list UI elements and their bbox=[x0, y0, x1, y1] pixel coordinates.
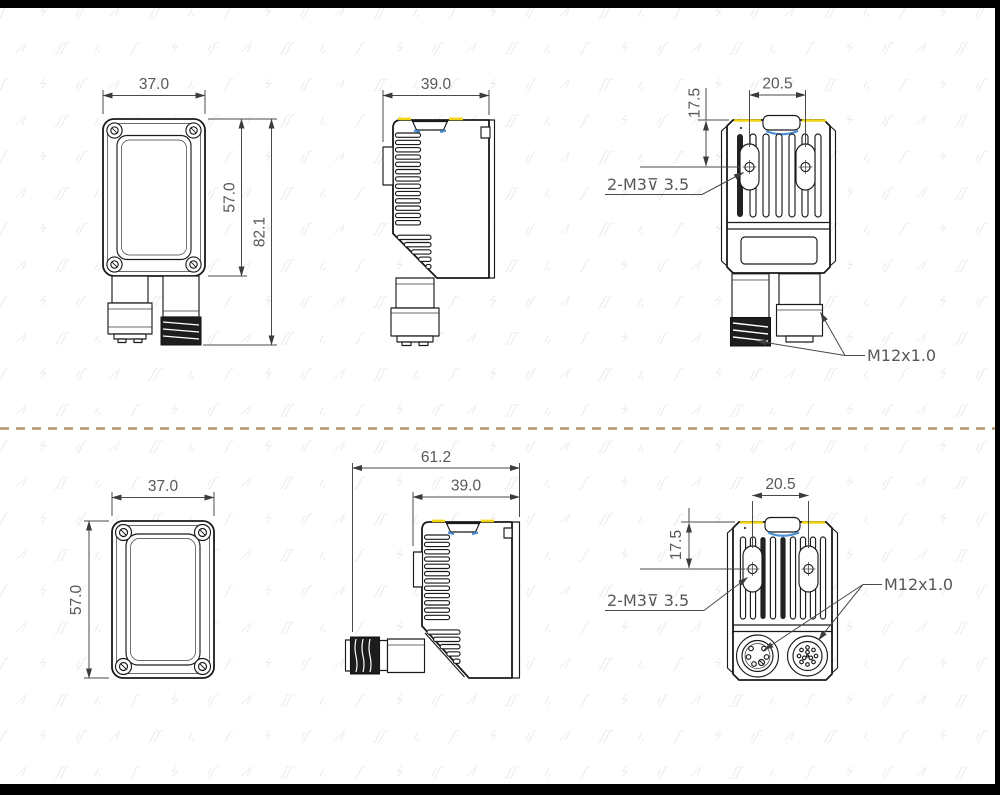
mounting-boss bbox=[740, 144, 759, 190]
svg-text:ı,: ı, bbox=[543, 403, 555, 418]
svg-text:ϟ: ϟ bbox=[711, 367, 724, 382]
svg-text:ıʃ: ıʃ bbox=[74, 657, 88, 672]
svg-text:ϟ: ϟ bbox=[393, 765, 406, 780]
svg-text:ʃ: ʃ bbox=[128, 693, 140, 708]
svg-text:ϟ: ϟ bbox=[618, 41, 631, 56]
svg-text:⁄ı: ⁄ı bbox=[689, 693, 703, 708]
svg-text:ʃ: ʃ bbox=[222, 222, 234, 237]
svg-text:ıʃ: ıʃ bbox=[880, 114, 894, 129]
svg-text:⁄ı: ⁄ı bbox=[557, 584, 571, 599]
svg-text:ı,: ı, bbox=[768, 693, 780, 708]
svg-text:ʃ: ʃ bbox=[0, 729, 9, 744]
svg-text:⁄ı: ⁄ı bbox=[332, 150, 346, 165]
svg-text:ı,: ı, bbox=[636, 729, 648, 744]
technical-drawing-page: ʃϟıʃ⁄ıʃʃı,ʃϟıʃ⁄ıʃʃı,ʃϟıʃ⁄ıʃʃı,ʃϟıʃ⁄ıʃʃı,… bbox=[0, 0, 1000, 795]
svg-text:ʃʃ: ʃʃ bbox=[953, 765, 969, 780]
svg-text:ʃ: ʃ bbox=[0, 584, 9, 599]
svg-text:ʃ: ʃ bbox=[0, 222, 9, 237]
svg-text:ϟ: ϟ bbox=[261, 729, 274, 744]
svg-text:ϟ: ϟ bbox=[261, 150, 274, 165]
svg-text:ı,: ı, bbox=[543, 693, 555, 708]
svg-text:ıʃ: ıʃ bbox=[74, 295, 88, 310]
svg-text:ı,: ı, bbox=[543, 548, 555, 563]
svg-text:ıʃ: ıʃ bbox=[205, 765, 219, 780]
svg-text:ı,: ı, bbox=[636, 150, 648, 165]
svg-text:ʃʃ: ʃʃ bbox=[53, 114, 69, 129]
svg-text:ʃʃ: ʃʃ bbox=[278, 621, 294, 636]
svg-text:ıʃ: ıʃ bbox=[430, 403, 444, 418]
svg-text:ϟ: ϟ bbox=[618, 765, 631, 780]
svg-text:ıʃ: ıʃ bbox=[299, 440, 313, 455]
svg-text:ı,: ı, bbox=[861, 295, 873, 310]
dim-label: 39.0 bbox=[421, 76, 452, 93]
svg-text:ı,: ı, bbox=[636, 367, 648, 382]
svg-text:ʃ: ʃ bbox=[578, 548, 590, 563]
svg-text:ʃ: ʃ bbox=[897, 150, 909, 165]
svg-text:ʃʃ: ʃʃ bbox=[372, 295, 388, 310]
svg-text:ʃʃ: ʃʃ bbox=[597, 729, 613, 744]
dim-label: 82.1 bbox=[252, 217, 269, 247]
svg-text:ʃʃ: ʃʃ bbox=[53, 331, 69, 346]
svg-text:ʃʃ: ʃʃ bbox=[53, 765, 69, 780]
svg-text:ı,: ı, bbox=[318, 331, 330, 346]
svg-text:ʃʃ: ʃʃ bbox=[278, 403, 294, 418]
svg-text:⁄ı: ⁄ı bbox=[782, 367, 796, 382]
svg-text:⁄ı: ⁄ı bbox=[689, 765, 703, 780]
svg-text:ı,: ı, bbox=[318, 765, 330, 780]
svg-text:ʃʃ: ʃʃ bbox=[597, 657, 613, 672]
svg-text:⁄ı: ⁄ı bbox=[782, 440, 796, 455]
svg-text:ϟ: ϟ bbox=[36, 367, 49, 382]
svg-text:ıʃ: ıʃ bbox=[880, 331, 894, 346]
svg-text:ʃ: ʃ bbox=[672, 295, 684, 310]
dim-label: 20.5 bbox=[765, 476, 795, 493]
svg-text:ıʃ: ıʃ bbox=[880, 41, 894, 56]
svg-text:ϟ: ϟ bbox=[36, 729, 49, 744]
svg-text:ϟ: ϟ bbox=[261, 78, 274, 93]
svg-text:ʃ: ʃ bbox=[353, 403, 365, 418]
svg-text:⁄ı: ⁄ı bbox=[239, 548, 253, 563]
svg-text:ʃ: ʃ bbox=[353, 621, 365, 636]
svg-text:ʃ: ʃ bbox=[578, 114, 590, 129]
svg-text:⁄ı: ⁄ı bbox=[557, 512, 571, 527]
svg-text:ʃ: ʃ bbox=[803, 41, 815, 56]
svg-text:ʃ: ʃ bbox=[578, 693, 590, 708]
mounting-boss bbox=[743, 546, 762, 592]
svg-text:ϟ: ϟ bbox=[393, 693, 406, 708]
svg-text:ıʃ: ıʃ bbox=[74, 78, 88, 93]
svg-text:ıʃ: ıʃ bbox=[205, 41, 219, 56]
svg-text:ʃʃ: ʃʃ bbox=[728, 476, 744, 491]
svg-text:ıʃ: ıʃ bbox=[524, 367, 538, 382]
svg-text:ϟ: ϟ bbox=[711, 150, 724, 165]
svg-text:ıʃ: ıʃ bbox=[974, 78, 988, 93]
svg-text:ʃʃ: ʃʃ bbox=[53, 476, 69, 491]
svg-text:ʃʃ: ʃʃ bbox=[822, 78, 838, 93]
svg-text:ı,: ı, bbox=[636, 295, 648, 310]
svg-text:ʃʃ: ʃʃ bbox=[53, 693, 69, 708]
svg-text:⁄ı: ⁄ı bbox=[239, 403, 253, 418]
svg-text:ıʃ: ıʃ bbox=[74, 222, 88, 237]
svg-text:ʃ: ʃ bbox=[128, 765, 140, 780]
svg-text:ʃʃ: ʃʃ bbox=[53, 41, 69, 56]
svg-text:ʃʃ: ʃʃ bbox=[822, 729, 838, 744]
svg-text:ʃ: ʃ bbox=[897, 512, 909, 527]
svg-text:⁄ı: ⁄ı bbox=[332, 295, 346, 310]
svg-text:⁄ı: ⁄ı bbox=[689, 186, 703, 201]
svg-text:ı,: ı, bbox=[861, 657, 873, 672]
svg-text:ı,: ı, bbox=[636, 512, 648, 527]
svg-text:⁄ı: ⁄ı bbox=[689, 41, 703, 56]
svg-text:ıʃ: ıʃ bbox=[430, 476, 444, 491]
svg-text:ıʃ: ıʃ bbox=[880, 403, 894, 418]
svg-text:ϟ: ϟ bbox=[711, 512, 724, 527]
svg-text:ʃ: ʃ bbox=[353, 765, 365, 780]
svg-text:ʃ: ʃ bbox=[672, 657, 684, 672]
svg-text:ϟ: ϟ bbox=[936, 512, 949, 527]
svg-text:ıʃ: ıʃ bbox=[299, 584, 313, 599]
svg-text:ʃ: ʃ bbox=[578, 403, 590, 418]
svg-text:⁄ı: ⁄ı bbox=[557, 440, 571, 455]
svg-text:ʃ: ʃ bbox=[128, 476, 140, 491]
svg-text:ʃ: ʃ bbox=[0, 295, 9, 310]
dim-label: 57.0 bbox=[68, 585, 85, 616]
svg-text:ϟ: ϟ bbox=[618, 693, 631, 708]
svg-text:ıʃ: ıʃ bbox=[205, 403, 219, 418]
svg-text:ʃ: ʃ bbox=[803, 765, 815, 780]
svg-text:ıʃ: ıʃ bbox=[299, 512, 313, 527]
svg-text:ʃ: ʃ bbox=[353, 41, 365, 56]
mounting-boss bbox=[796, 144, 815, 190]
svg-text:ı,: ı, bbox=[186, 78, 198, 93]
svg-text:ϟ: ϟ bbox=[618, 548, 631, 563]
svg-text:ı,: ı, bbox=[186, 440, 198, 455]
svg-text:ʃʃ: ʃʃ bbox=[53, 548, 69, 563]
svg-text:ʃʃ: ʃʃ bbox=[372, 512, 388, 527]
svg-text:ʃʃ: ʃʃ bbox=[953, 693, 969, 708]
svg-text:ϟ: ϟ bbox=[936, 729, 949, 744]
svg-text:⁄ı: ⁄ı bbox=[464, 693, 478, 708]
svg-text:ʃʃ: ʃʃ bbox=[147, 440, 163, 455]
svg-text:ϟ: ϟ bbox=[36, 295, 49, 310]
scan-edge-top bbox=[0, 0, 1000, 8]
svg-text:ʃʃ: ʃʃ bbox=[503, 765, 519, 780]
svg-text:ʃ: ʃ bbox=[0, 657, 9, 672]
svg-text:ı,: ı, bbox=[318, 693, 330, 708]
svg-text:⁄ı: ⁄ı bbox=[332, 222, 346, 237]
svg-text:ʃ: ʃ bbox=[222, 367, 234, 382]
svg-text:ıʃ: ıʃ bbox=[524, 512, 538, 527]
svg-text:ϟ: ϟ bbox=[711, 440, 724, 455]
svg-text:ıʃ: ıʃ bbox=[880, 621, 894, 636]
svg-text:ʃ: ʃ bbox=[447, 729, 459, 744]
svg-text:ʃ: ʃ bbox=[353, 548, 365, 563]
svg-text:⁄ı: ⁄ı bbox=[14, 621, 28, 636]
svg-text:ʃʃ: ʃʃ bbox=[53, 259, 69, 274]
svg-text:ıʃ: ıʃ bbox=[74, 729, 88, 744]
svg-text:ıʃ: ıʃ bbox=[299, 729, 313, 744]
svg-text:ϟ: ϟ bbox=[486, 295, 499, 310]
svg-text:⁄ı: ⁄ı bbox=[914, 403, 928, 418]
svg-text:⁄ı: ⁄ı bbox=[689, 621, 703, 636]
svg-text:ʃ: ʃ bbox=[672, 222, 684, 237]
svg-text:ı,: ı, bbox=[93, 476, 105, 491]
svg-text:⁄ı: ⁄ı bbox=[914, 114, 928, 129]
svg-text:ʃʃ: ʃʃ bbox=[372, 78, 388, 93]
svg-text:ıʃ: ıʃ bbox=[299, 657, 313, 672]
svg-text:ʃ: ʃ bbox=[447, 367, 459, 382]
svg-text:⁄ı: ⁄ı bbox=[557, 729, 571, 744]
svg-text:ʃ: ʃ bbox=[672, 440, 684, 455]
svg-text:ʃʃ: ʃʃ bbox=[503, 259, 519, 274]
dim-label: 17.5 bbox=[687, 88, 704, 118]
svg-text:ı,: ı, bbox=[543, 765, 555, 780]
svg-text:ϟ: ϟ bbox=[843, 548, 856, 563]
tap-callout: 2-M3⊽ 3.5 bbox=[605, 578, 748, 611]
svg-text:ϟ: ϟ bbox=[261, 584, 274, 599]
svg-text:ʃ: ʃ bbox=[447, 295, 459, 310]
dim-label: 57.0 bbox=[222, 182, 239, 213]
svg-text:ıʃ: ıʃ bbox=[974, 367, 988, 382]
svg-text:ı,: ı, bbox=[186, 367, 198, 382]
svg-text:⁄ı: ⁄ı bbox=[914, 548, 928, 563]
svg-text:⁄ı: ⁄ı bbox=[557, 295, 571, 310]
svg-text:ıʃ: ıʃ bbox=[524, 729, 538, 744]
svg-text:ʃʃ: ʃʃ bbox=[278, 476, 294, 491]
svg-text:ıʃ: ıʃ bbox=[524, 78, 538, 93]
indicator-blue bbox=[440, 131, 446, 133]
scan-edge-right bbox=[995, 0, 1000, 795]
svg-text:ʃʃ: ʃʃ bbox=[53, 186, 69, 201]
svg-text:ʃ: ʃ bbox=[578, 186, 590, 201]
svg-text:ʃ: ʃ bbox=[578, 41, 590, 56]
svg-text:ıʃ: ıʃ bbox=[430, 693, 444, 708]
svg-text:ʃʃ: ʃʃ bbox=[953, 621, 969, 636]
svg-text:ϟ: ϟ bbox=[843, 259, 856, 274]
svg-text:ıʃ: ıʃ bbox=[974, 150, 988, 165]
svg-text:ʃ: ʃ bbox=[128, 41, 140, 56]
svg-text:ıʃ: ıʃ bbox=[974, 657, 988, 672]
svg-text:ıʃ: ıʃ bbox=[299, 222, 313, 237]
svg-text:ı,: ı, bbox=[318, 259, 330, 274]
dim-label: 37.0 bbox=[148, 478, 179, 495]
svg-text:ʃ: ʃ bbox=[578, 331, 590, 346]
svg-text:⁄ı: ⁄ı bbox=[689, 548, 703, 563]
svg-text:ϟ: ϟ bbox=[168, 403, 181, 418]
svg-text:ʃʃ: ʃʃ bbox=[278, 331, 294, 346]
svg-text:⁄ı: ⁄ı bbox=[914, 186, 928, 201]
svg-text:ı,: ı, bbox=[411, 367, 423, 382]
svg-text:ı,: ı, bbox=[861, 222, 873, 237]
svg-text:ı,: ı, bbox=[318, 621, 330, 636]
svg-text:ı,: ı, bbox=[543, 186, 555, 201]
svg-text:ıʃ: ıʃ bbox=[880, 476, 894, 491]
svg-text:ıʃ: ıʃ bbox=[749, 78, 763, 93]
svg-text:ϟ: ϟ bbox=[936, 440, 949, 455]
svg-text:ıʃ: ıʃ bbox=[749, 729, 763, 744]
svg-text:ϟ: ϟ bbox=[486, 78, 499, 93]
svg-text:ʃ: ʃ bbox=[353, 114, 365, 129]
svg-text:ı,: ı, bbox=[93, 621, 105, 636]
svg-text:ϟ: ϟ bbox=[618, 259, 631, 274]
svg-text:ϟ: ϟ bbox=[36, 512, 49, 527]
svg-text:⁄ı: ⁄ı bbox=[14, 114, 28, 129]
svg-text:ϟ: ϟ bbox=[843, 621, 856, 636]
svg-text:ʃʃ: ʃʃ bbox=[372, 729, 388, 744]
svg-text:ϟ: ϟ bbox=[486, 729, 499, 744]
svg-text:ϟ: ϟ bbox=[393, 548, 406, 563]
svg-text:ʃʃ: ʃʃ bbox=[503, 186, 519, 201]
svg-text:ıʃ: ıʃ bbox=[205, 259, 219, 274]
svg-text:ϟ: ϟ bbox=[36, 222, 49, 237]
svg-text:ʃʃ: ʃʃ bbox=[53, 403, 69, 418]
svg-text:⁄ı: ⁄ı bbox=[689, 331, 703, 346]
svg-text:⁄ı: ⁄ı bbox=[914, 331, 928, 346]
svg-text:⁄ı: ⁄ı bbox=[107, 78, 121, 93]
connector-bottom bbox=[391, 278, 439, 346]
svg-text:ϟ: ϟ bbox=[843, 693, 856, 708]
dim-label: 20.5 bbox=[762, 76, 792, 93]
svg-text:ʃ: ʃ bbox=[897, 729, 909, 744]
svg-text:⁄ı: ⁄ı bbox=[464, 765, 478, 780]
svg-text:ıʃ: ıʃ bbox=[655, 114, 669, 129]
indicator-blue bbox=[414, 131, 420, 133]
svg-text:ʃ: ʃ bbox=[353, 693, 365, 708]
svg-text:ʃʃ: ʃʃ bbox=[278, 693, 294, 708]
svg-text:ʃʃ: ʃʃ bbox=[147, 729, 163, 744]
svg-text:⁄ı: ⁄ı bbox=[689, 403, 703, 418]
svg-text:⁄ı: ⁄ı bbox=[107, 729, 121, 744]
svg-text:ʃ: ʃ bbox=[672, 150, 684, 165]
label-plate bbox=[741, 237, 817, 264]
svg-text:ʃ: ʃ bbox=[222, 150, 234, 165]
svg-text:ʃ: ʃ bbox=[897, 367, 909, 382]
svg-text:ʃʃ: ʃʃ bbox=[503, 403, 519, 418]
svg-text:⁄ı: ⁄ı bbox=[557, 367, 571, 382]
svg-text:ıʃ: ıʃ bbox=[974, 222, 988, 237]
svg-text:ı,: ı, bbox=[636, 222, 648, 237]
svg-text:ϟ: ϟ bbox=[261, 440, 274, 455]
svg-text:ϟ: ϟ bbox=[843, 403, 856, 418]
indicator-blue bbox=[448, 533, 454, 535]
svg-text:ʃ: ʃ bbox=[803, 693, 815, 708]
svg-text:⁄ı: ⁄ı bbox=[332, 512, 346, 527]
svg-text:ı,: ı, bbox=[93, 403, 105, 418]
svg-text:ıʃ: ıʃ bbox=[74, 512, 88, 527]
svg-text:ıʃ: ıʃ bbox=[974, 295, 988, 310]
svg-text:ʃʃ: ʃʃ bbox=[372, 367, 388, 382]
svg-text:ı,: ı, bbox=[543, 259, 555, 274]
svg-text:ıʃ: ıʃ bbox=[205, 331, 219, 346]
svg-text:ı,: ı, bbox=[318, 41, 330, 56]
svg-text:ϟ: ϟ bbox=[36, 78, 49, 93]
svg-text:ϟ: ϟ bbox=[843, 476, 856, 491]
svg-text:ϟ: ϟ bbox=[618, 403, 631, 418]
svg-text:⁄ı: ⁄ı bbox=[239, 621, 253, 636]
svg-text:ϟ: ϟ bbox=[261, 657, 274, 672]
svg-text:ıʃ: ıʃ bbox=[524, 440, 538, 455]
connector-elbow-threaded bbox=[346, 637, 425, 674]
svg-text:ʃʃ: ʃʃ bbox=[597, 295, 613, 310]
svg-text:ı,: ı, bbox=[768, 765, 780, 780]
svg-text:ı,: ı, bbox=[186, 729, 198, 744]
svg-text:ı,: ı, bbox=[93, 693, 105, 708]
svg-text:ʃ: ʃ bbox=[0, 367, 9, 382]
svg-text:ıʃ: ıʃ bbox=[299, 150, 313, 165]
svg-text:ıʃ: ıʃ bbox=[524, 584, 538, 599]
tap-label: 2-M3⊽ 3.5 bbox=[607, 591, 689, 610]
connector-label: M12x1.0 bbox=[867, 346, 936, 365]
svg-text:ʃʃ: ʃʃ bbox=[278, 765, 294, 780]
svg-text:ı,: ı, bbox=[861, 440, 873, 455]
svg-text:⁄ı: ⁄ı bbox=[239, 41, 253, 56]
svg-text:ı,: ı, bbox=[318, 476, 330, 491]
front-window bbox=[117, 136, 191, 260]
dim-label: 39.0 bbox=[451, 478, 482, 495]
svg-text:⁄ı: ⁄ı bbox=[914, 693, 928, 708]
svg-text:ϟ: ϟ bbox=[843, 186, 856, 201]
svg-text:ı,: ı, bbox=[861, 729, 873, 744]
svg-text:⁄ı: ⁄ı bbox=[557, 222, 571, 237]
svg-text:ϟ: ϟ bbox=[936, 222, 949, 237]
svg-text:ı,: ı, bbox=[861, 512, 873, 527]
svg-text:ı,: ı, bbox=[861, 150, 873, 165]
svg-text:ϟ: ϟ bbox=[261, 512, 274, 527]
svg-text:ʃʃ: ʃʃ bbox=[597, 512, 613, 527]
svg-text:⁄ı: ⁄ı bbox=[332, 657, 346, 672]
svg-text:⁄ı: ⁄ı bbox=[782, 729, 796, 744]
svg-text:⁄ı: ⁄ı bbox=[332, 367, 346, 382]
svg-text:ı,: ı, bbox=[411, 729, 423, 744]
dim-label: 17.5 bbox=[668, 530, 685, 560]
svg-text:ʃʃ: ʃʃ bbox=[597, 222, 613, 237]
svg-text:⁄ı: ⁄ı bbox=[14, 693, 28, 708]
svg-text:ʃ: ʃ bbox=[897, 440, 909, 455]
svg-text:ı,: ı, bbox=[861, 367, 873, 382]
view-rear-bottom: 20.5 17.5 2-M3⊽ 3.5 M12x1.0 bbox=[605, 476, 953, 680]
svg-text:ı,: ı, bbox=[543, 331, 555, 346]
indicator-blue bbox=[472, 533, 478, 535]
svg-text:ıʃ: ıʃ bbox=[524, 150, 538, 165]
svg-text:ʃ: ʃ bbox=[897, 295, 909, 310]
svg-text:ʃʃ: ʃʃ bbox=[953, 259, 969, 274]
mounting-boss bbox=[799, 546, 818, 592]
svg-text:ϟ: ϟ bbox=[711, 657, 724, 672]
svg-text:ʃʃ: ʃʃ bbox=[278, 41, 294, 56]
svg-text:ıʃ: ıʃ bbox=[74, 440, 88, 455]
svg-text:ʃʃ: ʃʃ bbox=[53, 621, 69, 636]
svg-text:ϟ: ϟ bbox=[168, 693, 181, 708]
svg-text:ϟ: ϟ bbox=[393, 621, 406, 636]
svg-text:⁄ı: ⁄ı bbox=[14, 186, 28, 201]
svg-text:ıʃ: ıʃ bbox=[205, 693, 219, 708]
connector-plain bbox=[108, 276, 152, 343]
svg-text:ıʃ: ıʃ bbox=[524, 657, 538, 672]
svg-text:ʃʃ: ʃʃ bbox=[503, 476, 519, 491]
svg-text:ϟ: ϟ bbox=[36, 440, 49, 455]
svg-text:ıʃ: ıʃ bbox=[880, 548, 894, 563]
connector-threaded bbox=[731, 274, 771, 346]
connector-plain bbox=[777, 274, 823, 342]
svg-text:ı,: ı, bbox=[93, 331, 105, 346]
svg-text:ʃ: ʃ bbox=[672, 512, 684, 527]
svg-text:ı,: ı, bbox=[318, 403, 330, 418]
svg-text:ıʃ: ıʃ bbox=[524, 222, 538, 237]
svg-text:⁄ı: ⁄ı bbox=[464, 41, 478, 56]
svg-text:ıʃ: ıʃ bbox=[974, 729, 988, 744]
svg-text:ʃ: ʃ bbox=[0, 78, 9, 93]
tap-label: 2-M3⊽ 3.5 bbox=[607, 175, 689, 194]
